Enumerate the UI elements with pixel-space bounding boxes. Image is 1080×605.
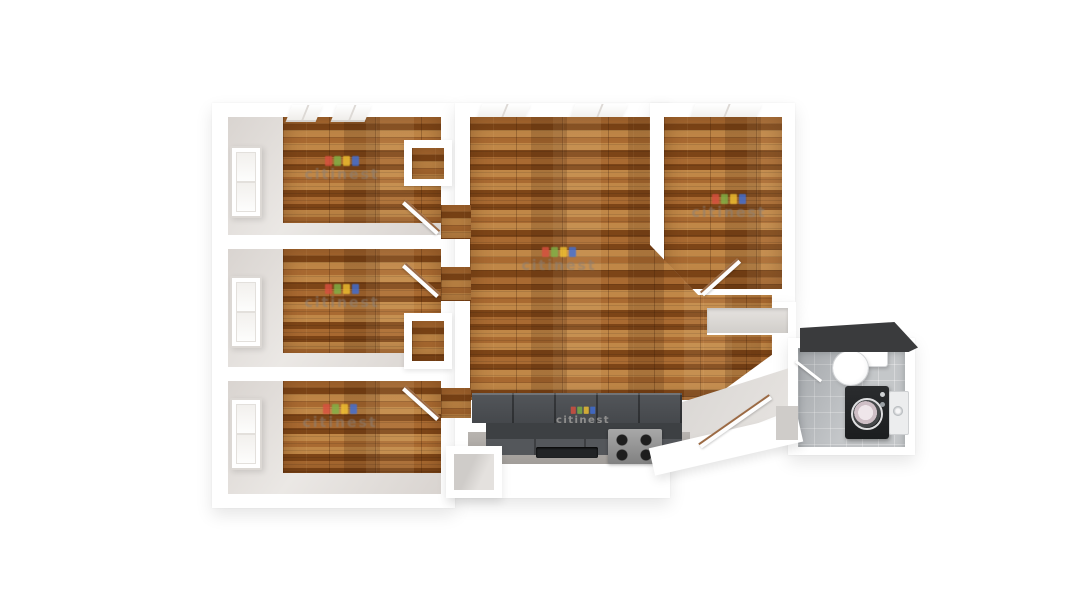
washer-door bbox=[851, 398, 883, 430]
kitchen-upper-cabinets bbox=[472, 393, 682, 423]
vestibule-floor bbox=[454, 454, 494, 490]
window-bedroom-middle-left bbox=[230, 276, 262, 348]
window-pane bbox=[236, 434, 256, 464]
window-pane bbox=[236, 152, 256, 182]
water-heater bbox=[889, 391, 909, 435]
window-pane bbox=[236, 182, 256, 212]
kitchen-sink bbox=[536, 447, 598, 458]
water-heater-dial bbox=[893, 406, 903, 416]
threshold-bedroom-middle-left bbox=[441, 267, 471, 301]
window-pane bbox=[236, 282, 256, 312]
closet-shelf bbox=[707, 308, 788, 335]
bathroom-roof-ledge bbox=[800, 322, 918, 352]
top-window-bedroom-left-2 bbox=[331, 105, 372, 122]
floor-bedroom-top-right bbox=[664, 117, 782, 289]
window-pane bbox=[236, 404, 256, 434]
threshold-bedroom-top-left bbox=[441, 205, 471, 239]
washer-button bbox=[880, 402, 885, 407]
closet-floor bbox=[412, 321, 444, 361]
washer-dial bbox=[880, 392, 885, 397]
washing-machine bbox=[845, 386, 889, 439]
window-bedroom-top-left bbox=[230, 146, 262, 218]
toilet-bowl bbox=[833, 351, 868, 385]
bathroom-threshold bbox=[776, 406, 798, 440]
window-bedroom-bottom-left bbox=[230, 398, 262, 470]
floor-bedroom-bottom-left bbox=[283, 381, 441, 473]
closet-floor bbox=[412, 148, 444, 179]
window-pane bbox=[236, 312, 256, 342]
floorplan-render: citinest citinest citinest citinest citi… bbox=[0, 0, 1080, 605]
threshold-bedroom-bottom-left bbox=[441, 388, 471, 418]
